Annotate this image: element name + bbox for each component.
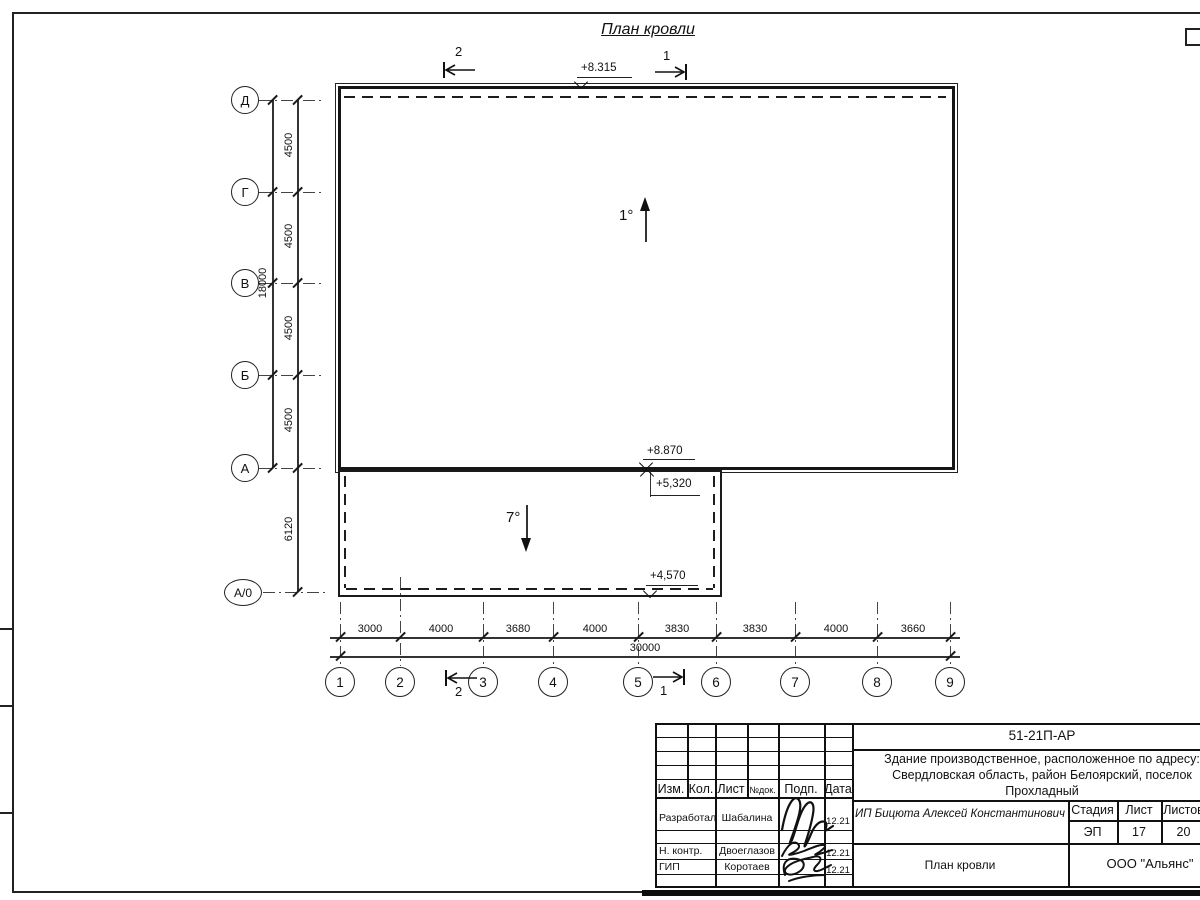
dim-label: 3830 [723,623,787,635]
elevation-roof-main: +8.315 [581,62,617,74]
sheet-value: 17 [1117,825,1161,839]
corner-box-top [1185,28,1200,30]
row-role: ГИП [659,861,680,873]
axis-bubble-bottom: 1 [325,667,355,697]
stage-label: Стадия [1068,803,1117,817]
section-mark-2-top-label: 2 [455,44,462,59]
axis-bubble-bottom: 8 [862,667,892,697]
annex-parapet-dashed-bottom [346,588,713,590]
dim-label: 4500 [283,206,295,266]
col-list: Лист [715,782,747,796]
section-mark-1-top-label: 1 [663,48,670,63]
margin-divider [0,812,13,814]
axis-bubble-bottom: 7 [780,667,810,697]
customer-name: ИП Бицюта Алексей Константинович [852,808,1068,820]
elevation-edge-main: +8.870 [647,445,683,457]
dim-label: 3680 [486,623,550,635]
axis-bubble-bottom: 4 [538,667,568,697]
dim-label: 4000 [409,623,473,635]
stage-value: ЭП [1068,825,1117,839]
annex-parapet-dashed-right [713,476,715,588]
axis-bubble-left: Б [231,361,259,389]
corner-box-left [1185,28,1187,46]
margin-divider [0,705,13,707]
dimension-line-4500 [297,100,299,592]
dimension-line-segments [330,637,960,639]
dim-label: 4500 [283,115,295,175]
axis-bubble-left: А [231,454,259,482]
dim-label-total-horizontal: 30000 [613,642,677,654]
elevation-underline [577,77,632,78]
axis-bubble-left: А/0 [224,579,262,606]
dim-label: 4500 [283,298,295,358]
axis-bubble-left: Г [231,178,259,206]
frame-left [12,12,14,893]
axis-bubble-bottom: 6 [701,667,731,697]
frame-top [12,12,1200,14]
slope-arrow-down-icon [521,538,531,552]
margin-divider [0,628,13,630]
row-role: Разработал [659,812,716,824]
corner-box-bottom [1185,44,1200,46]
row-role: Н. контр. [659,845,702,857]
project-address-line3: Прохладный [852,784,1200,798]
roof-main-outline [338,86,955,470]
dim-label: 3000 [338,623,402,635]
roof-parapet-dashed-line [344,96,946,98]
annex-parapet-dashed-left [344,476,346,588]
titleblock-line [1068,820,1200,822]
titleblock-line [655,737,852,738]
section-arrow-right-icon [652,62,690,82]
row-name: Двоеглазов [716,845,778,857]
axis-line [400,577,401,666]
dimension-line-total [330,656,960,658]
frame-bottom-thick [642,890,1200,896]
page-title: План кровли [588,21,708,39]
slope-arrow-up-icon [640,197,650,211]
titleblock-line [655,779,852,780]
slope-annex-label: 7° [506,509,520,526]
dim-label-annex-depth: 6120 [283,499,295,559]
col-kol: Кол. [687,782,715,796]
axis-bubble-bottom: 2 [385,667,415,697]
sheet-label: Лист [1117,803,1161,817]
sheets-label: Листов [1161,803,1200,817]
drawing-sheet: План кровли 18000 4500 4500 4500 4500 61… [0,0,1200,900]
titleblock-line [852,843,1200,845]
col-ndok: №док. [747,785,778,795]
doc-code: 51-21П-АР [852,728,1200,743]
drawing-name: План кровли [852,858,1068,872]
titleblock-line [655,751,852,752]
titleblock-line [655,765,852,766]
signature [779,853,835,885]
col-izm: Изм. [655,782,687,796]
project-address-line2: Свердловская область, район Белоярский, … [852,768,1200,782]
organization-name: ООО "Альянс" [1068,856,1200,871]
dim-label: 3830 [645,623,709,635]
slope-main-label: 1° [619,207,633,224]
row-name: Коротаев [716,861,778,873]
row-name: Шабалина [716,812,778,824]
elevation-annex-low: +4,570 [650,570,686,582]
titleblock-line [852,749,1200,751]
section-mark-2-bottom-label: 2 [455,684,462,699]
axis-bubble-bottom: 9 [935,667,965,697]
dim-label: 4500 [283,390,295,450]
elevation-annex-high: +5,320 [656,478,692,490]
section-arrow-left-icon [440,60,478,80]
axis-bubble-bottom: 5 [623,667,653,697]
axis-bubble-left: В [231,269,259,297]
section-mark-1-bottom-label: 1 [660,683,667,698]
dim-label: 3660 [881,623,945,635]
project-address-line1: Здание производственное, расположенное п… [852,752,1200,766]
axis-bubble-left: Д [231,86,259,114]
dim-label: 4000 [563,623,627,635]
titleblock-line [852,800,1200,802]
elevation-underline [650,495,700,496]
section-arrow-right-icon [650,667,688,687]
elevation-underline [646,585,698,586]
dim-label: 4000 [804,623,868,635]
sheets-value: 20 [1161,825,1200,839]
